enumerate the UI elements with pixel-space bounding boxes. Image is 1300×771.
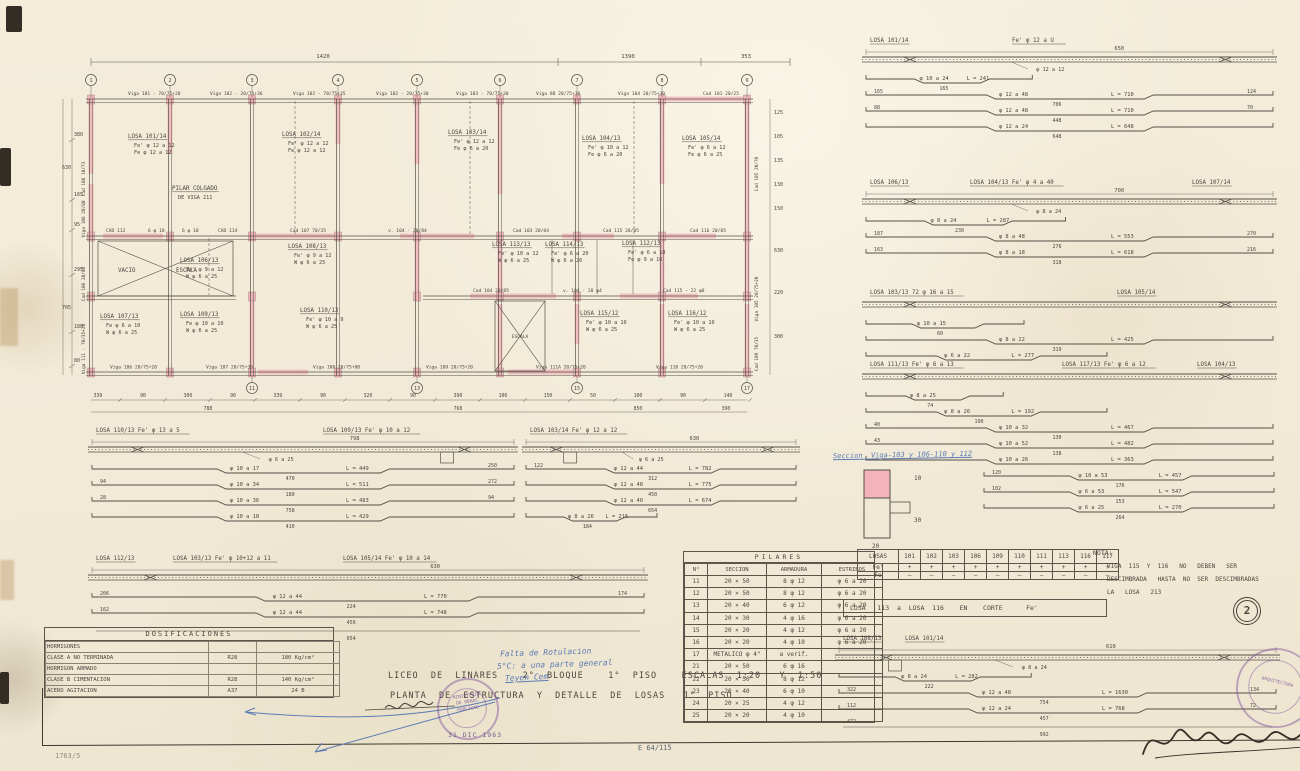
svg-text:180: 180 [74,324,83,330]
svg-text:Viga 80 20/75+30: Viga 80 20/75+30 [536,91,580,97]
slab-detail-strip: 120φ 10 a 53L = 457176102φ 6 a 53L = 547… [980,462,1290,528]
svg-text:1420: 1420 [316,54,329,60]
svg-text:165: 165 [874,89,883,95]
svg-text:250: 250 [488,463,497,469]
svg-text:Viga 111 - 70/35+20: Viga 111 - 70/35+20 [81,324,87,375]
svg-text:90: 90 [230,393,236,399]
svg-text:206: 206 [100,591,109,597]
svg-text:Viga 105 20/75+20: Viga 105 20/75+20 [754,276,760,321]
svg-text:φ 10 a 17: φ 10 a 17 [230,466,259,472]
svg-text:122: 122 [534,463,543,469]
svg-text:LOSA 116/12: LOSA 116/12 [668,311,706,317]
svg-text:W φ 6 a 25: W φ 6 a 25 [106,330,137,336]
svg-text:162: 162 [100,607,109,613]
svg-text:φ 10 a 53: φ 10 a 53 [1078,473,1107,479]
svg-text:105: 105 [774,134,783,140]
svg-text:LOSA 104/13 Fe' φ 4 a 40: LOSA 104/13 Fe' φ 4 a 40 [970,180,1054,186]
scan-edge-mark [0,672,9,704]
dosif-cell: CLASE A NO TERMINADA [46,653,209,664]
svg-text:165: 165 [74,192,83,198]
svg-text:758: 758 [286,508,295,514]
svg-text:6 φ 18: 6 φ 18 [182,228,199,234]
svg-text:LOSA 106/13: LOSA 106/13 [180,258,219,264]
svg-text:216: 216 [1247,247,1256,253]
svg-text:124: 124 [1247,89,1256,95]
svg-text:Cad 108 10/73: Cad 108 10/73 [81,161,87,196]
pilares-row: 1120 × 508 φ 12φ 6 a 20 [685,576,883,588]
svg-text:90: 90 [140,393,146,399]
svg-text:Viga 107 20/75+35: Viga 107 20/75+35 [206,365,253,371]
svg-text:φ 12 a 48: φ 12 a 48 [999,108,1028,114]
svg-text:φ 12 a 40: φ 12 a 40 [614,498,643,504]
svg-text:Fe φ 6 a 20: Fe φ 6 a 20 [588,152,622,158]
svg-text:138: 138 [1053,451,1062,457]
dosif-cell [209,642,257,653]
svg-text:222: 222 [925,684,934,690]
svg-text:φ 10 a 18: φ 10 a 18 [230,514,259,520]
svg-text:Fe φ 12 a 12: Fe φ 12 a 12 [134,150,171,156]
svg-text:W φ 6 a 25: W φ 6 a 25 [674,327,705,333]
dosif-cell: R28 [209,653,257,664]
svg-text:10: 10 [914,475,922,482]
pilares-title: PILARES [684,552,874,563]
svg-text:Cad 105 20/70: Cad 105 20/70 [754,156,760,191]
svg-text:φ 12 a 44: φ 12 a 44 [273,594,302,600]
svg-text:300: 300 [774,334,783,340]
svg-text:230: 230 [955,228,964,234]
svg-text:LOSA 106/13: LOSA 106/13 [870,180,909,186]
svg-text:187: 187 [874,231,883,237]
svg-text:L = 483: L = 483 [346,498,369,504]
dosif-cell: HORMIGON ARMADO [46,664,209,675]
svg-text:630: 630 [689,436,699,442]
svg-text:CAD 114: CAD 114 [218,228,238,234]
svg-text:VACIO: VACIO [118,268,136,274]
svg-text:40: 40 [874,422,880,428]
svg-text:L = 782: L = 782 [689,466,712,472]
svg-text:140: 140 [724,393,733,399]
svg-text:L = 287: L = 287 [987,218,1010,224]
svg-text:φ 8 a 24: φ 8 a 24 [1022,665,1047,671]
svg-text:276: 276 [1053,244,1062,250]
scan-corner-mark [6,6,22,32]
svg-text:φ 10 a 24: φ 10 a 24 [920,76,949,82]
svg-text:28: 28 [100,495,106,501]
svg-text:353: 353 [741,54,751,60]
svg-text:LOSA 117/13 Fe' φ 6 a 12: LOSA 117/13 Fe' φ 6 a 12 [1062,362,1146,368]
svg-text:LOSA 103/13 Fe' φ 10+12 a 11: LOSA 103/13 Fe' φ 10+12 a 11 [173,556,271,562]
svg-text:6: 6 [498,78,501,84]
svg-text:L = 710: L = 710 [1111,92,1134,98]
svg-text:Fe' φ 6 a 20: Fe' φ 6 a 20 [551,251,588,257]
svg-text:CAD 112: CAD 112 [106,228,126,234]
svg-text:ESCALA: ESCALA [512,334,529,340]
svg-text:LOSA 109/13 Fe' φ 10 a 12: LOSA 109/13 Fe' φ 10 a 12 [323,428,410,434]
pilares-row: 1520 × 204 φ 12φ 6 a 20 [685,624,883,636]
svg-text:270: 270 [1247,231,1256,237]
svg-text:13: 13 [414,386,420,392]
svg-text:9: 9 [745,78,748,84]
pencil-note: 1763/5 [55,752,80,761]
svg-text:LOSA 105/14 Fe' φ 10 a 14: LOSA 105/14 Fe' φ 10 a 14 [343,556,431,562]
svg-text:L = 241: L = 241 [967,76,990,82]
svg-text:Cad 101 20/25: Cad 101 20/25 [703,91,739,97]
blueprint-sheet: VACIOESCALAESCALA14201390353123456789111… [0,0,1300,771]
svg-text:Viga 102 - 70/75+35: Viga 102 - 70/75+35 [293,91,346,97]
svg-text:318: 318 [1053,260,1062,266]
svg-text:Fe' φ 12 a U: Fe' φ 12 a U [1012,38,1054,44]
svg-text:94: 94 [100,479,106,485]
pilares-row: 17METALICO φ 4"a verif. [685,649,883,661]
dosificaciones-row: HORMIGONES [46,642,340,653]
svg-text:Viga 101 - 70/75+20: Viga 101 - 70/75+20 [128,91,181,97]
svg-text:100: 100 [499,393,508,399]
svg-text:Viga 110 20/75+20: Viga 110 20/75+20 [656,365,703,371]
svg-text:Fe φ 12 a 12: Fe φ 12 a 12 [288,148,325,154]
svg-text:φ 12 a 48: φ 12 a 48 [982,690,1011,696]
svg-text:102: 102 [992,486,1001,492]
svg-text:φ 6 a 25: φ 6 a 25 [269,457,294,463]
svg-text:Cad 107 70/35: Cad 107 70/35 [290,228,326,234]
svg-text:LOSA 104/13: LOSA 104/13 [582,136,621,142]
svg-text:Viga 104 20/75+30: Viga 104 20/75+30 [618,91,665,97]
svg-text:LOSA 108/13: LOSA 108/13 [288,244,327,250]
svg-text:705: 705 [62,305,71,311]
svg-text:100: 100 [634,393,643,399]
svg-text:125: 125 [774,110,783,116]
svg-text:180: 180 [286,492,295,498]
svg-text:W φ 6 a 25: W φ 6 a 25 [498,258,529,264]
dosificaciones-title: DOSIFICACIONES [45,628,333,641]
svg-text:320: 320 [364,393,373,399]
svg-text:380: 380 [74,132,83,138]
svg-text:390: 390 [722,406,731,412]
dosificaciones-row: CLASE A NO TERMINADAR28180 Kg/cm² [46,653,340,664]
svg-text:L = 216: L = 216 [605,514,628,520]
svg-text:LOSA 101/14: LOSA 101/14 [905,636,944,642]
losas-table: LOSAS101102103106109110111113116117Fe'++… [857,549,1119,580]
svg-text:LOSA 112/13: LOSA 112/13 [96,556,135,562]
svg-text:LOSA 115/12: LOSA 115/12 [580,311,618,317]
svg-text:Viga 102 - 20/75+30: Viga 102 - 20/75+30 [376,91,429,97]
svg-text:4: 4 [336,78,339,84]
svg-text:30: 30 [914,517,922,524]
ink-signature [1135,712,1300,767]
svg-text:90: 90 [410,393,416,399]
svg-text:90: 90 [680,393,686,399]
svg-text:L = 710: L = 710 [1111,108,1134,114]
dosif-cell: CLASE B CIMENTACION [46,675,209,686]
pilares-row: 2220 × 508 φ 12 [685,673,883,685]
svg-text:135: 135 [774,158,783,164]
svg-text:184: 184 [583,524,592,530]
svg-text:50: 50 [590,393,596,399]
svg-text:LOSA 109/13: LOSA 109/13 [180,312,219,318]
svg-text:φ 8 a 26: φ 8 a 26 [568,514,594,520]
svg-text:φ 6 a 25: φ 6 a 25 [1078,505,1104,511]
svg-text:LOSA 103/14 Fe' φ 12 a 12: LOSA 103/14 Fe' φ 12 a 12 [530,428,617,434]
svg-text:LOSA 101/14: LOSA 101/14 [128,134,167,140]
dosificaciones-row: HORMIGON ARMADO [46,664,340,675]
svg-text:LOSA 110/13: LOSA 110/13 [300,308,339,314]
svg-text:Fe' φ 10 a 12: Fe' φ 10 a 12 [588,145,629,151]
svg-text:410: 410 [286,524,295,530]
svg-text:Viga 109 20/75+20: Viga 109 20/75+20 [426,365,473,371]
svg-text:L = 511: L = 511 [346,482,369,488]
pilares-header: N°SECCIONARMADURAESTRIBOS [685,564,883,576]
svg-text:Viga 106 20/80: Viga 106 20/80 [81,200,87,237]
svg-text:φ 8 a 48: φ 8 a 48 [999,234,1025,240]
svg-text:Fe' φ 12 a 12: Fe' φ 12 a 12 [134,143,175,149]
pilares-row: 2520 × 204 φ 10 [685,710,883,722]
svg-text:992: 992 [1040,732,1049,738]
scan-edge-mark [0,148,11,186]
dosif-cell [209,664,257,675]
svg-text:224: 224 [347,604,356,610]
svg-text:654: 654 [648,508,657,514]
svg-text:L = 467: L = 467 [1111,425,1134,431]
svg-text:φ 8 a 18: φ 8 a 18 [999,250,1025,256]
svg-text:φ 10 a 32: φ 10 a 32 [999,425,1028,431]
svg-text:Cad 116 20/85: Cad 116 20/85 [690,228,726,234]
svg-text:Fe' φ 10 a 9: Fe' φ 10 a 9 [306,317,343,323]
svg-text:448: 448 [1053,118,1062,124]
svg-text:φ 8 a 25: φ 8 a 25 [910,393,936,399]
svg-text:165: 165 [939,86,948,92]
svg-text:94: 94 [488,495,494,501]
svg-text:Viga 103 - 70/75+30: Viga 103 - 70/75+30 [456,91,509,97]
slab-detail-strip: LOSA 106/13LOSA 104/13 Fe' φ 4 a 40LOSA … [862,176,1289,273]
svg-text:11: 11 [249,386,255,392]
svg-text:74: 74 [927,403,933,409]
svg-text:LOSA 102/14: LOSA 102/14 [282,132,321,138]
svg-text:φ 12 a 12: φ 12 a 12 [1036,67,1064,73]
svg-text:648: 648 [1053,134,1062,140]
svg-text:90: 90 [320,393,326,399]
svg-text:Fe' φ 6 a 18: Fe' φ 6 a 18 [628,250,665,256]
svg-text:312: 312 [648,476,657,482]
svg-text:LOSA 111/13 Fe' φ 6 a 13: LOSA 111/13 Fe' φ 6 a 13 [870,362,954,368]
svg-text:W φ 6 a 25: W φ 6 a 25 [294,260,325,266]
svg-text:457: 457 [1040,716,1049,722]
svg-text:L = 553: L = 553 [1111,234,1134,240]
svg-text:W φ 6 a 25: W φ 6 a 25 [186,328,217,334]
svg-text:Viga 111A 20/75+20: Viga 111A 20/75+20 [536,365,586,371]
svg-text:φ 12 a 48: φ 12 a 48 [999,92,1028,98]
svg-text:630: 630 [774,248,783,254]
svg-text:W φ 6 a 20: W φ 6 a 20 [551,258,582,264]
svg-text:φ 12 a 44: φ 12 a 44 [273,610,302,616]
svg-text:700: 700 [1114,188,1124,194]
dosificaciones-rows: HORMIGONESCLASE A NO TERMINADAR28180 Kg/… [45,641,340,697]
svg-text:130: 130 [774,182,783,188]
svg-text:798: 798 [350,436,360,442]
svg-text:φ 10 a 15: φ 10 a 15 [917,321,946,327]
svg-text:Fe' φ 12 a 12: Fe' φ 12 a 12 [454,139,495,145]
svg-text:43: 43 [874,438,880,444]
tape-stain [0,560,14,600]
svg-text:Viga 108 20/75+80: Viga 108 20/75+80 [313,365,360,371]
dosif-cell [257,664,340,675]
svg-text:LOSA 114/13: LOSA 114/13 [545,242,584,248]
svg-text:390: 390 [454,393,463,399]
svg-text:Fe' φ 12 a 12: Fe' φ 12 a 12 [288,141,329,147]
svg-text:339: 339 [94,393,103,399]
handwritten-ref: E 64/115 [638,744,672,754]
svg-text:L = 1630: L = 1630 [1102,690,1128,696]
svg-text:7: 7 [575,78,578,84]
svg-text:610: 610 [1106,644,1116,650]
svg-text:L = 425: L = 425 [1111,337,1134,343]
dosif-cell: 140 Kg/cm² [257,675,340,686]
svg-text:8: 8 [660,78,663,84]
svg-text:Fe φ 10 a 10: Fe φ 10 a 10 [186,321,223,327]
svg-text:W φ 6 a 25: W φ 6 a 25 [306,324,337,330]
dosif-cell: 180 Kg/cm² [257,653,340,664]
svg-text:706: 706 [1053,102,1062,108]
svg-text:φ 8 a 24: φ 8 a 24 [1036,209,1061,215]
svg-text:L = 547: L = 547 [1159,489,1182,495]
svg-text:φ 12 a 44: φ 12 a 44 [614,466,643,472]
svg-text:L = 648: L = 648 [1111,124,1134,130]
pilares-rows: N°SECCIONARMADURAESTRIBOS1120 × 508 φ 12… [684,563,883,722]
svg-text:φ 10 a 52: φ 10 a 52 [999,441,1028,447]
svg-text:LOSA 101/14: LOSA 101/14 [870,38,909,44]
svg-text:Cad 115 - 22 φ8: Cad 115 - 22 φ8 [663,288,705,294]
svg-text:Cad 103 20/84: Cad 103 20/84 [513,228,549,234]
svg-text:788: 788 [204,406,213,412]
svg-text:2: 2 [168,78,171,84]
svg-text:15: 15 [574,386,580,392]
svg-text:654: 654 [347,636,356,642]
svg-text:LOSA 113/13: LOSA 113/13 [492,242,531,248]
dosif-cell: ACERO AGITACION [46,686,209,697]
svg-text:Fe' φ 9 a 12: Fe' φ 9 a 12 [186,267,223,273]
svg-text:80: 80 [74,358,80,364]
svg-text:70: 70 [1247,105,1253,111]
dimension-line-top: 14201390353 [91,54,790,66]
svg-text:L = 770: L = 770 [424,594,447,600]
svg-text:L = 282: L = 282 [955,674,978,680]
svg-text:Fe' φ 9 a 12: Fe' φ 9 a 12 [294,253,331,259]
svg-text:L = 457: L = 457 [1159,473,1182,479]
svg-text:17: 17 [744,386,750,392]
nota-line: DESCIMBRADA HASTA NO SER DESCIMBRADAS [1107,576,1259,584]
svg-text:LOSA 105/14: LOSA 105/14 [682,136,721,142]
svg-text:L = 429: L = 429 [346,514,369,520]
svg-text:630: 630 [430,564,440,570]
svg-text:319: 319 [1053,347,1062,353]
svg-text:163: 163 [874,247,883,253]
svg-text:650: 650 [1114,46,1124,52]
svg-text:LOSA 105/14: LOSA 105/14 [1117,290,1156,296]
svg-text:LOSA 107/14: LOSA 107/14 [1192,180,1231,186]
svg-text:Fe' φ 6 a 12: Fe' φ 6 a 12 [688,145,725,151]
svg-text:Fe' φ 10 a 10: Fe' φ 10 a 10 [586,320,627,326]
pilares-row: 2120 × 506 φ 16 [685,661,883,673]
svg-text:L = 674: L = 674 [689,498,712,504]
losas-row-fe: Fe—————————— [858,572,1119,580]
svg-text:Fe φ 9 a 16: Fe φ 9 a 16 [628,257,662,263]
slab-detail-strip: LOSA 110/13 Fe' φ 13 a 5LOSA 109/13 Fe' … [88,424,530,537]
nota-title: NOTA: [1093,549,1113,557]
svg-text:264: 264 [1116,515,1125,521]
svg-text:Fe' φ 10 a 10: Fe' φ 10 a 10 [674,320,715,326]
svg-text:130: 130 [1053,435,1062,441]
svg-text:1: 1 [89,78,92,84]
svg-text:Fe φ 6 a 20: Fe φ 6 a 20 [454,146,488,152]
svg-text:120: 120 [992,470,1001,476]
svg-text:295: 295 [74,267,83,273]
svg-text:φ 8 a 24: φ 8 a 24 [930,218,956,224]
svg-text:95: 95 [74,222,80,228]
svg-text:φ 6 a 53: φ 6 a 53 [1078,489,1104,495]
tape-stain [0,288,18,346]
svg-text:φ 12 a 48: φ 12 a 48 [614,482,643,488]
svg-text:60: 60 [937,331,943,337]
svg-text:φ 8 a 22: φ 8 a 22 [999,337,1025,343]
svg-text:754: 754 [1040,700,1049,706]
svg-text:φ 12 a 24: φ 12 a 24 [999,124,1028,130]
dosificaciones-table: DOSIFICACIONES HORMIGONESCLASE A NO TERM… [44,627,334,698]
pilares-row: 2320 × 406 φ 10 [685,685,883,697]
svg-text:Fe' φ 10 a 12: Fe' φ 10 a 12 [498,251,539,257]
svg-text:Fe φ 6 a 25: Fe φ 6 a 25 [688,152,722,158]
svg-text:φ 6 a 25: φ 6 a 25 [639,457,664,463]
svg-text:LOSA 112/13: LOSA 112/13 [622,241,661,247]
floor-plan: VACIOESCALAESCALA14201390353123456789111… [58,44,803,429]
svg-text:Cad 115 20/85: Cad 115 20/85 [603,228,639,234]
losas-row-fe-prime: Fe'++++++++++ [858,564,1119,572]
dosif-cell: HORMIGONES [46,642,209,653]
svg-text:6 φ 18: 6 φ 18 [148,228,165,234]
sheet-border-left [42,688,43,746]
svg-text:450: 450 [648,492,657,498]
svg-text:φ 8 a 24: φ 8 a 24 [901,674,927,680]
svg-text:LOSA 107/13: LOSA 107/13 [100,314,139,320]
date-stamp: 31 DIC 1963 [448,731,502,739]
svg-text:L = 775: L = 775 [689,482,712,488]
svg-text:φ 10 a 36: φ 10 a 36 [230,498,259,504]
slab-detail-strip: LOSA 101/14Fe' φ 12 a U650φ 12 a 12φ 10 … [862,34,1289,147]
svg-text:150: 150 [544,393,553,399]
svg-text:Cad 104 20/85: Cad 104 20/85 [473,288,509,294]
svg-text:LOSA 103/14: LOSA 103/14 [448,130,487,136]
svg-text:L = 768: L = 768 [1102,706,1125,712]
svg-text:88: 88 [874,105,880,111]
svg-text:174: 174 [618,591,627,597]
svg-text:Cad 109 70/35: Cad 109 70/35 [754,336,760,371]
svg-text:L = 449: L = 449 [346,466,369,472]
svg-text:272: 272 [488,479,497,485]
pilares-row: 2420 × 254 φ 12 [685,697,883,709]
svg-text:850: 850 [634,406,643,412]
svg-text:5: 5 [415,78,418,84]
svg-text:v. 104 - 20 φ4: v. 104 - 20 φ4 [563,288,602,294]
nota-line: VIGA 115 Y 116 NO DEBEN SER [1107,563,1237,571]
dosificaciones-row: CLASE B CIMENTACIONR28140 Kg/cm² [46,675,340,686]
svg-text:470: 470 [286,476,295,482]
svg-text:φ 12 a 24: φ 12 a 24 [982,706,1011,712]
svg-text:φ 10 a 34: φ 10 a 34 [230,482,259,488]
svg-text:Viga 106 20/75+20: Viga 106 20/75+20 [110,365,157,371]
pilares-row: 1620 × 204 φ 10φ 6 a 20 [685,636,883,648]
beam-t-section: 10 30 20 [850,466,940,551]
svg-text:LOSA 103/13 72 φ 16 a 15: LOSA 103/13 72 φ 16 a 15 [870,290,954,296]
svg-text:Fe φ 6 a 10: Fe φ 6 a 10 [106,323,140,329]
svg-text:1390: 1390 [621,54,634,60]
losas-header: LOSAS101102103106109110111113116117 [858,550,1119,564]
